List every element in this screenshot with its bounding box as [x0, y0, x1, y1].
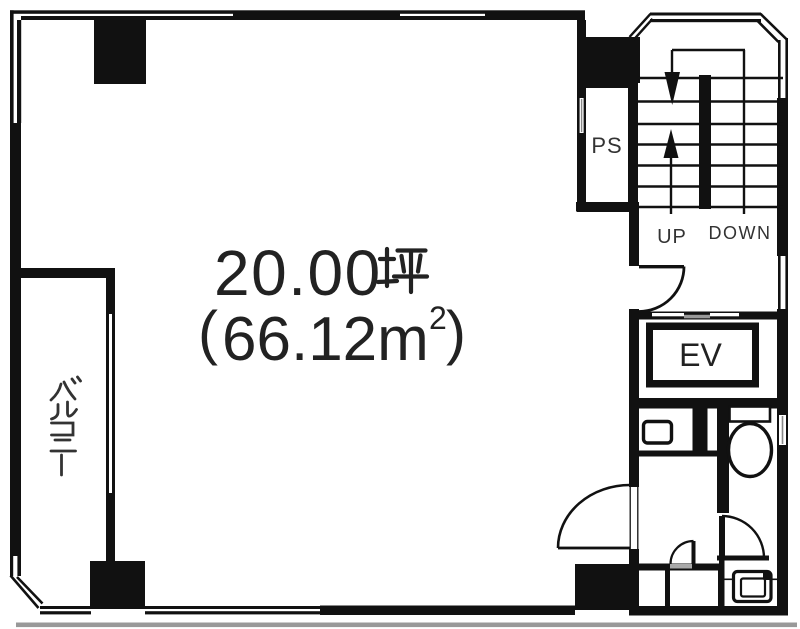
svg-text:PS: PS	[591, 133, 622, 158]
svg-text:(: (	[198, 299, 218, 366]
svg-text:2: 2	[429, 300, 447, 336]
svg-text:UP: UP	[657, 226, 687, 248]
svg-text:DOWN: DOWN	[709, 223, 772, 243]
svg-text:EV: EV	[679, 337, 722, 373]
svg-text:66.12m: 66.12m	[222, 305, 429, 374]
svg-text:): )	[446, 299, 466, 366]
svg-text:20.00: 20.00	[214, 237, 382, 309]
